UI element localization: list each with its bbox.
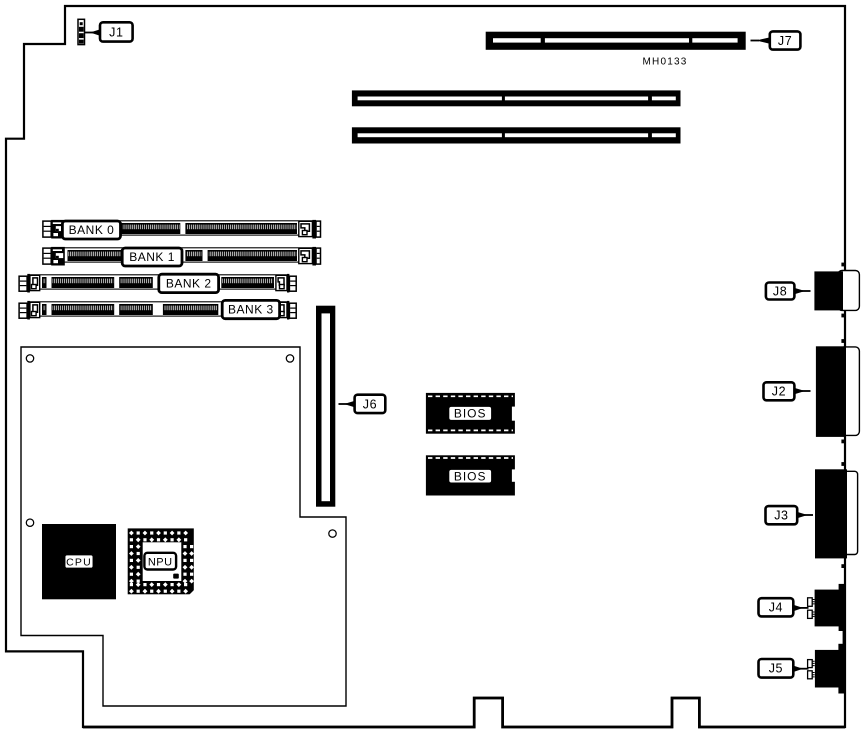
svg-text:J6: J6 [363,397,377,411]
svg-text:BANK 0: BANK 0 [69,223,115,237]
svg-text:BANK 2: BANK 2 [166,277,212,291]
svg-text:J2: J2 [772,385,786,399]
svg-text:J5: J5 [769,662,783,676]
svg-text:BIOS: BIOS [454,407,487,421]
svg-text:J3: J3 [774,509,788,523]
svg-text:CPU: CPU [66,556,92,568]
svg-text:J7: J7 [778,34,792,48]
svg-text:J8: J8 [773,284,787,298]
svg-text:NPU: NPU [148,556,173,568]
svg-text:BANK 3: BANK 3 [228,303,274,317]
svg-text:BANK 1: BANK 1 [129,250,175,264]
svg-text:MH0133: MH0133 [643,57,688,68]
svg-text:J1: J1 [109,25,123,39]
svg-text:J4: J4 [769,601,783,615]
svg-text:BIOS: BIOS [454,469,487,483]
